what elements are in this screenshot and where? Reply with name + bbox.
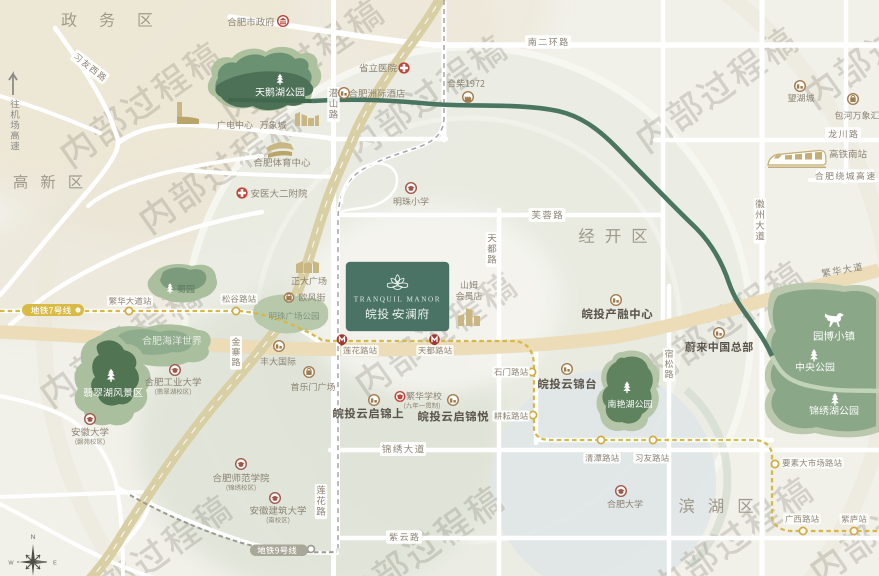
- svg-text:W: W: [8, 561, 14, 567]
- svg-text:TRANQUIL MANOR: TRANQUIL MANOR: [354, 296, 441, 304]
- svg-text:N: N: [31, 534, 36, 541]
- svg-text:E: E: [53, 561, 57, 567]
